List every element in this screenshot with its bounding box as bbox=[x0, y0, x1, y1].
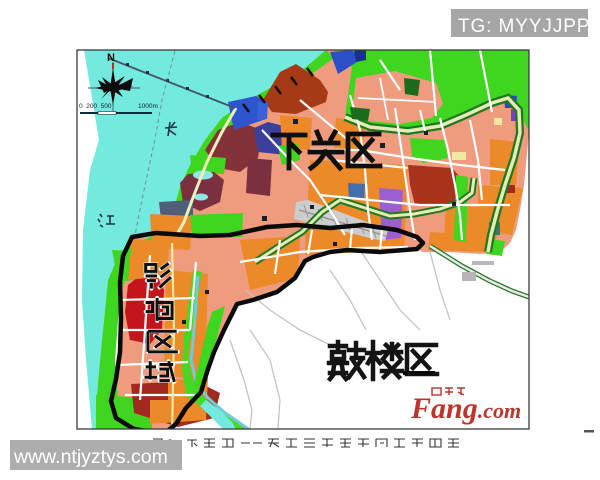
svg-text:TG: MYYJJPP: TG: MYYJJPP bbox=[458, 16, 590, 37]
svg-text:0 200 500: 0 200 500 bbox=[79, 103, 112, 110]
svg-text:1000m: 1000m bbox=[138, 103, 158, 110]
svg-text:N: N bbox=[107, 52, 115, 64]
svg-text:www.ntjyztys.com: www.ntjyztys.com bbox=[13, 446, 168, 468]
